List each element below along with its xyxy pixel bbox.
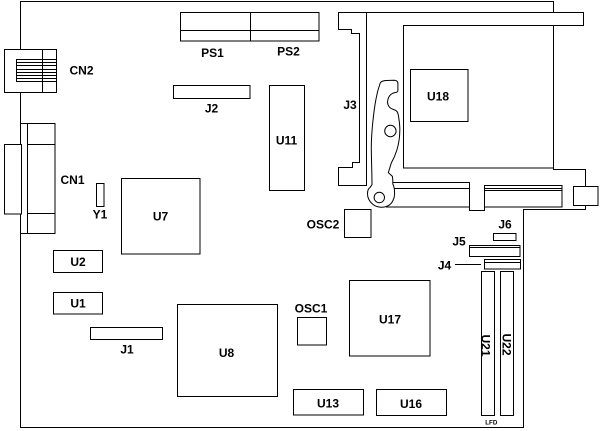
svg-text:J6: J6 xyxy=(498,218,512,232)
svg-text:OSC2: OSC2 xyxy=(307,218,340,232)
svg-text:Y1: Y1 xyxy=(93,208,108,222)
svg-text:J2: J2 xyxy=(205,102,219,116)
svg-text:U8: U8 xyxy=(219,346,235,360)
svg-text:U17: U17 xyxy=(379,313,401,327)
svg-text:U16: U16 xyxy=(400,397,422,411)
svg-text:J1: J1 xyxy=(120,343,134,357)
svg-text:U2: U2 xyxy=(70,255,86,269)
svg-text:U1: U1 xyxy=(70,297,86,311)
svg-text:U18: U18 xyxy=(427,90,449,104)
svg-text:U7: U7 xyxy=(153,210,169,224)
svg-text:U21: U21 xyxy=(479,334,493,356)
svg-text:OSC1: OSC1 xyxy=(295,302,328,316)
svg-text:U13: U13 xyxy=(317,397,339,411)
svg-text:J3: J3 xyxy=(343,98,357,112)
svg-text:LFD: LFD xyxy=(485,420,498,427)
svg-text:U11: U11 xyxy=(276,134,298,148)
svg-text:PS2: PS2 xyxy=(277,45,300,59)
svg-text:J5: J5 xyxy=(452,235,466,249)
svg-text:U22: U22 xyxy=(499,333,513,355)
svg-text:CN1: CN1 xyxy=(60,173,84,187)
svg-text:CN2: CN2 xyxy=(69,64,93,78)
svg-text:J4: J4 xyxy=(438,259,452,273)
svg-text:PS1: PS1 xyxy=(201,46,224,60)
